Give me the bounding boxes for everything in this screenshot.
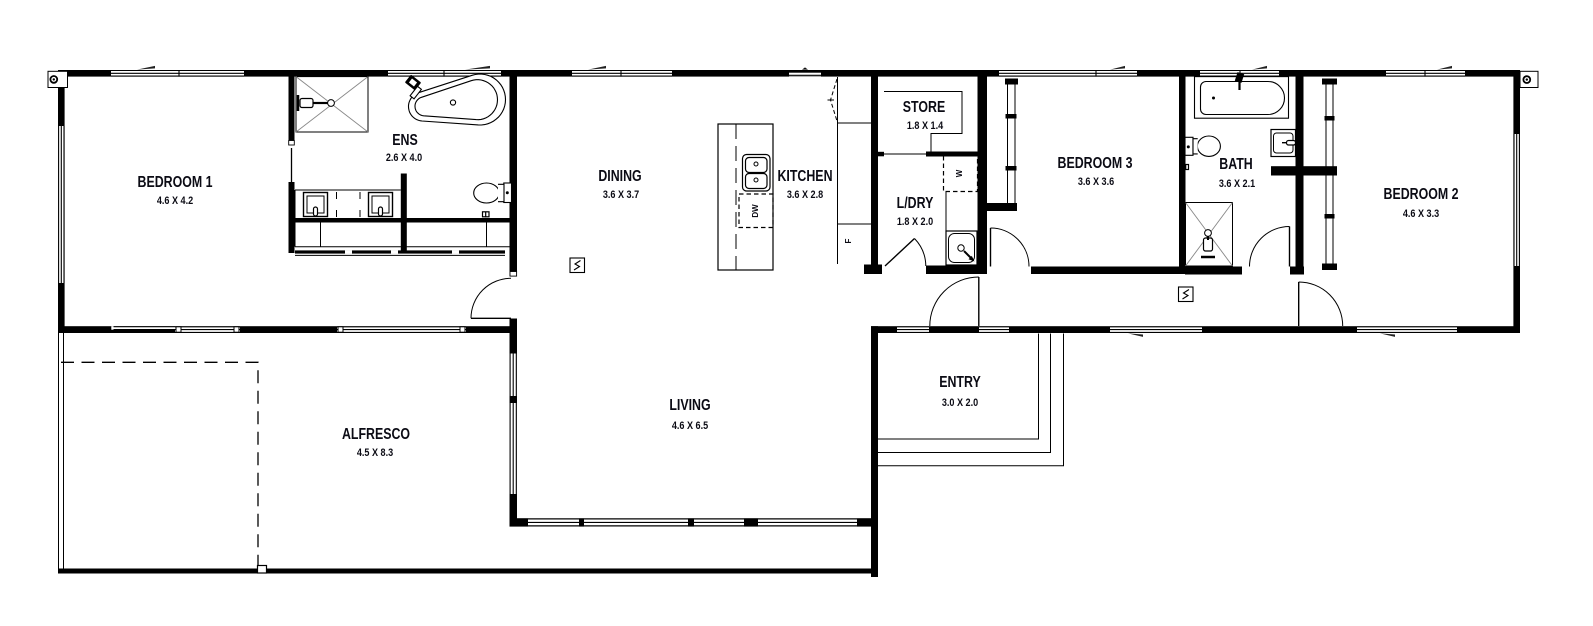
svg-text:ENTRY: ENTRY (939, 374, 981, 391)
svg-text:3.6 X 2.8: 3.6 X 2.8 (787, 189, 823, 201)
svg-text:ALFRESCO: ALFRESCO (342, 426, 410, 443)
svg-text:4.6 X 6.5: 4.6 X 6.5 (672, 420, 708, 432)
svg-text:DINING: DINING (598, 168, 641, 185)
svg-text:BATH: BATH (1219, 156, 1253, 173)
svg-text:STORE: STORE (903, 99, 945, 116)
svg-text:1.8 X 1.4: 1.8 X 1.4 (907, 120, 944, 132)
svg-text:F: F (844, 238, 853, 243)
svg-text:BEDROOM 2: BEDROOM 2 (1384, 186, 1459, 203)
svg-text:LIVING: LIVING (669, 397, 710, 414)
svg-text:3.6 X 2.1: 3.6 X 2.1 (1219, 178, 1255, 190)
svg-text:BEDROOM 3: BEDROOM 3 (1058, 155, 1133, 172)
svg-text:4.6 X 3.3: 4.6 X 3.3 (1403, 208, 1439, 220)
svg-text:KITCHEN: KITCHEN (777, 168, 832, 185)
svg-text:1.8 X 2.0: 1.8 X 2.0 (897, 216, 933, 228)
svg-text:2.6 X 4.0: 2.6 X 4.0 (386, 152, 422, 164)
svg-text:4.6 X 4.2: 4.6 X 4.2 (157, 195, 193, 207)
svg-text:W: W (955, 169, 964, 177)
svg-text:4.5 X 8.3: 4.5 X 8.3 (357, 447, 393, 459)
svg-text:ENS: ENS (392, 132, 418, 149)
svg-text:DW: DW (751, 204, 760, 218)
svg-text:BEDROOM 1: BEDROOM 1 (138, 174, 213, 191)
svg-text:L/DRY: L/DRY (897, 195, 934, 212)
svg-text:3.6 X 3.6: 3.6 X 3.6 (1078, 176, 1114, 188)
svg-text:3.0 X 2.0: 3.0 X 2.0 (942, 397, 978, 409)
svg-text:3.6 X 3.7: 3.6 X 3.7 (603, 189, 639, 201)
